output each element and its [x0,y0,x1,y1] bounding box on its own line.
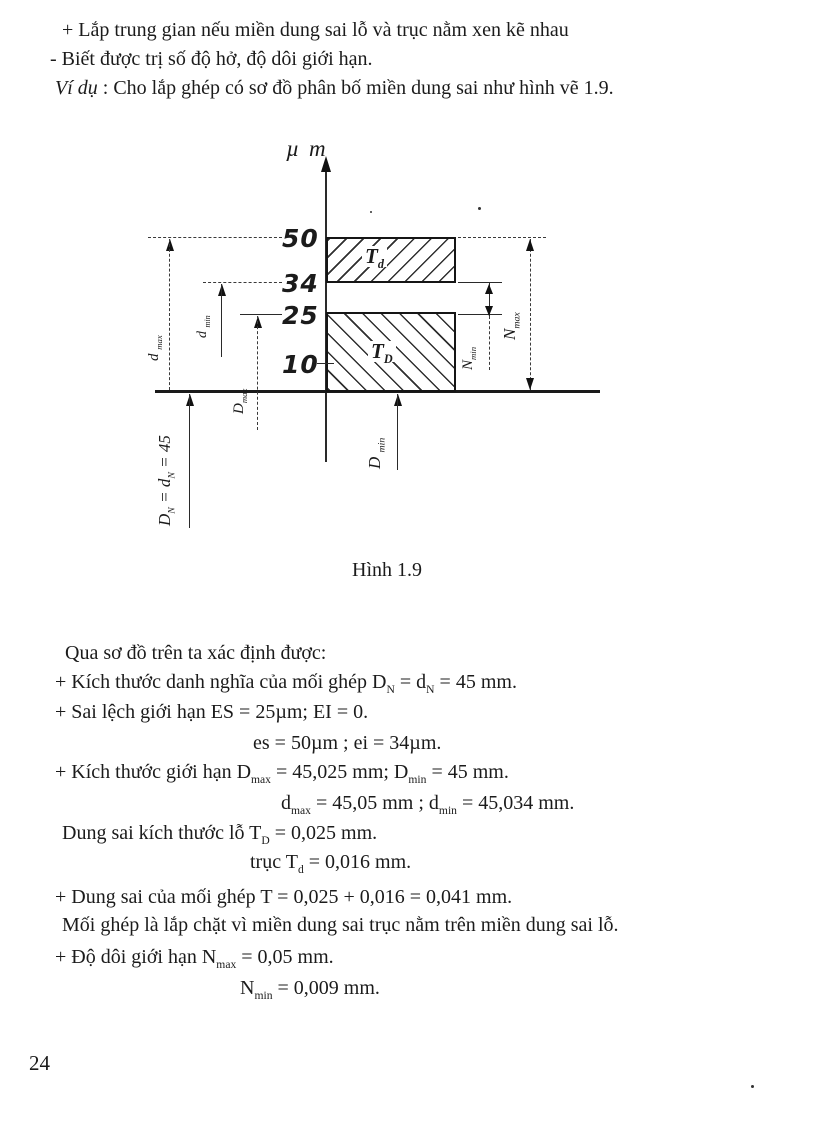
ext-line-50-left [148,237,282,238]
body-line: Dung sai kích thước lỗ TD = 0,025 mm. [62,821,377,845]
ext-line-25-right [458,314,502,315]
tick-50: 50 [282,226,318,251]
tick-10: 10 [282,352,318,377]
tolerance-diagram: µ m Td TD 50 34 25 10 d max d min D [0,0,816,600]
scan-artifact-dot [751,1085,754,1088]
Nmax-arrow-down-icon [526,378,534,390]
dmax-label: d max [147,335,162,361]
body-line: Qua sơ đồ trên ta xác định được: [65,641,326,665]
body-line: + Dung sai của mối ghép T = 0,025 + 0,01… [55,885,512,909]
tick-34: 34 [282,271,318,296]
body-line: + Độ dôi giới hạn Nmax = 0,05 mm. [55,945,334,969]
dmax-arrow-icon [166,239,174,251]
shaft-zone-label: Td [362,246,387,267]
document-page: + Lắp trung gian nếu miền dung sai lỗ và… [0,0,816,1123]
tick-10-mark [317,363,334,364]
nominal-dim-line [189,394,190,528]
nominal-arrow-icon [186,394,194,406]
Nmax-dim-line [530,239,531,390]
Dmin-label: D min [366,438,383,469]
body-line: Mối ghép là lắp chặt vì miền dung sai tr… [62,913,619,937]
ext-line-50-right [458,237,546,238]
body-line: + Sai lệch giới hạn ES = 25µm; EI = 0. [55,700,368,724]
body-line: dmax = 45,05 mm ; dmin = 45,034 mm. [281,791,574,815]
Dmax-dim-line [257,316,258,430]
body-line: Nmin = 0,009 mm. [240,976,380,1000]
dmax-dim-line [169,239,170,390]
axis-arrow-icon [321,156,331,172]
tick-25: 25 [282,303,318,328]
dmin-dim-line [221,284,222,357]
scan-artifact-dot [478,207,481,210]
Nmin-arrow-up-icon [485,284,493,294]
Nmin-label: Nmin [461,347,476,370]
Nmax-arrow-up-icon [526,239,534,251]
Dmax-label: Dmax [232,389,247,414]
ext-line-34-right [458,282,502,283]
page-number: 24 [29,1051,50,1075]
hole-zone-label: TD [368,341,396,362]
Nmin-ext-line [489,316,490,370]
Dmin-arrow-icon [394,394,402,406]
body-line: trục Td = 0,016 mm. [250,850,411,874]
Nmax-label: Nmax [501,312,518,340]
body-line: + Kích thước danh nghĩa của mối ghép DN … [55,670,517,694]
dmin-label: d min [196,315,210,338]
Dmax-arrow-icon [254,316,262,328]
nominal-size-label: DN = dN = 45 [156,435,173,526]
shaft-tolerance-zone [326,237,456,283]
ext-line-25-left [240,314,282,315]
body-line: + Kích thước giới hạn Dmax = 45,025 mm; … [55,760,509,784]
scan-artifact-dot [370,211,372,213]
dmin-arrow-icon [218,284,226,296]
Dmin-dim-line [397,394,398,470]
Nmin-arrow-down-icon [485,306,493,316]
ext-line-34-left [203,282,282,283]
body-line: es = 50µm ; ei = 34µm. [253,731,441,755]
figure-caption: Hình 1.9 [352,559,422,582]
